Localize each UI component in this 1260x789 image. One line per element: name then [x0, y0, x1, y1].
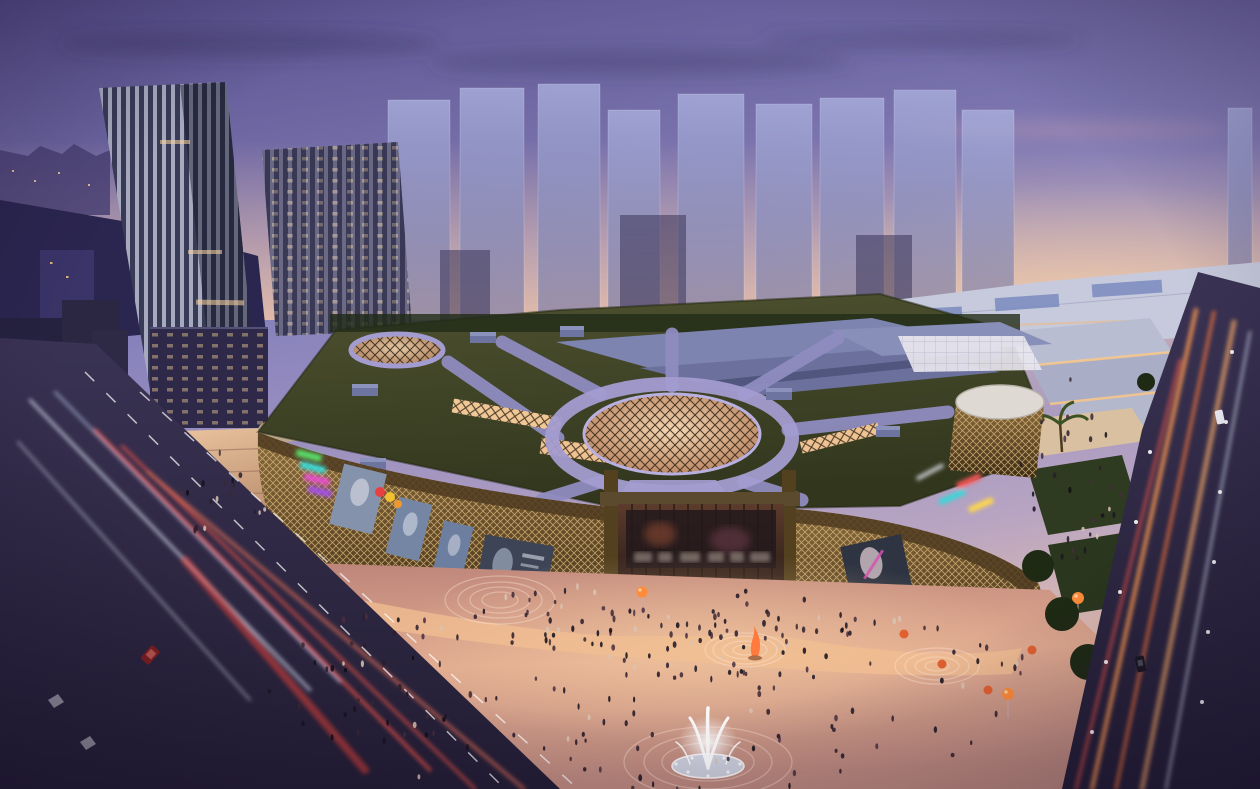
vignette	[0, 0, 1260, 789]
mall-rendering	[0, 0, 1260, 789]
rendering-canvas	[0, 0, 1260, 789]
